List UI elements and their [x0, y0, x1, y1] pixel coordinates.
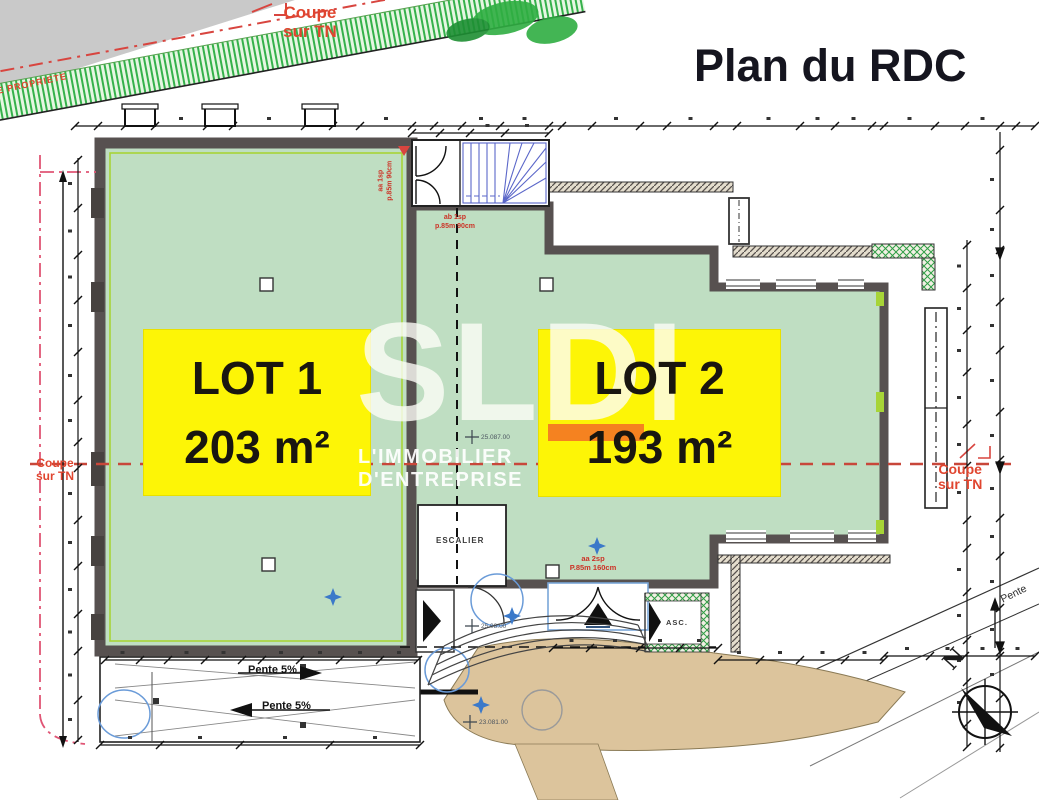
pente-down-label: Pente 5%: [262, 700, 311, 712]
floor-plan-page: Plan du RDC Coupesur TN Coupesur TN Coup…: [0, 0, 1039, 800]
lot1-name: LOT 1: [192, 344, 322, 413]
section-mark-right: [960, 444, 990, 458]
lower-right-walls: [718, 555, 890, 652]
coupe-sur-tn-top: Coupesur TN: [283, 4, 337, 41]
lot2-bay-note: aa 2spP.85m 160cm: [548, 554, 638, 573]
coupe-sur-tn-left: Coupesur TN: [36, 457, 74, 483]
lot1-area: 203 m²: [184, 413, 330, 482]
escalier-door-arc: [468, 587, 504, 623]
compass-rose: [952, 679, 1018, 745]
stairwell: [412, 140, 549, 206]
property-line-left: [40, 155, 96, 744]
elevation-entrance: 25.08.00: [481, 623, 506, 630]
lot1-label: LOT 1 203 m²: [143, 329, 371, 496]
lot1-window-note: aa 1spp.85m 90cm: [377, 136, 395, 226]
asc-label: ASC.: [666, 618, 688, 627]
page-title: Plan du RDC: [694, 40, 967, 92]
escalier-label: ESCALIER: [436, 536, 484, 545]
terrain-tan: [444, 639, 905, 800]
lot2-name: LOT 2: [594, 344, 724, 413]
lot2-window-note: ab 1spp.85m 90cm: [420, 214, 490, 232]
lot2-area: 193 m²: [587, 413, 733, 482]
elevation-terrain: 23.081.00: [479, 719, 508, 726]
pente-up-label: Pente 5%: [248, 664, 297, 676]
lot2-label: LOT 2 193 m²: [538, 329, 781, 497]
coupe-sur-tn-right: Coupesur TN: [938, 462, 982, 493]
